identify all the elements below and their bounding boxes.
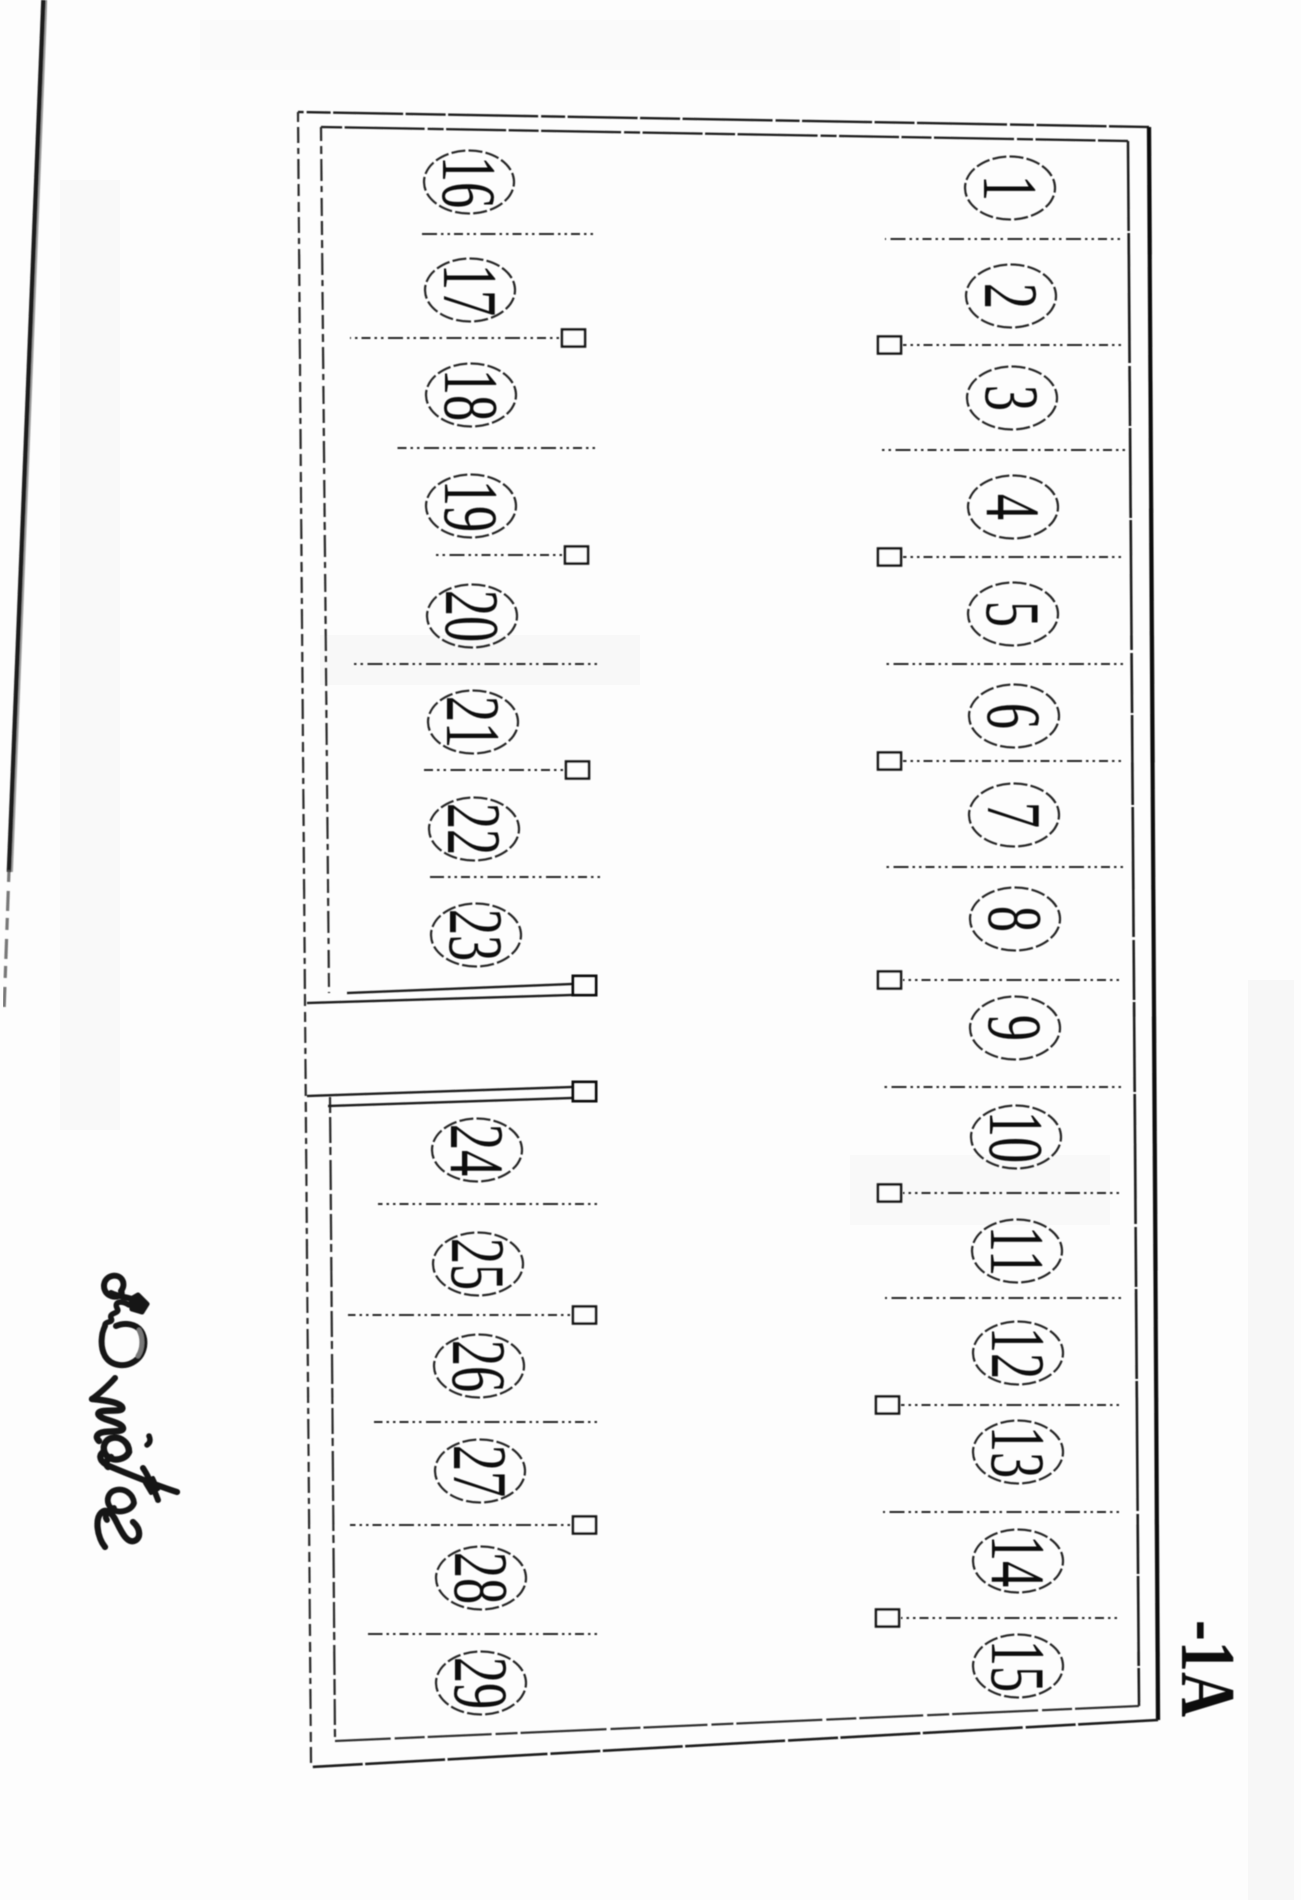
svg-text:8: 8 xyxy=(971,906,1056,932)
svg-text:7: 7 xyxy=(970,802,1055,828)
svg-text:10: 10 xyxy=(972,1111,1057,1163)
svg-text:13: 13 xyxy=(974,1426,1059,1478)
svg-text:20: 20 xyxy=(428,590,513,642)
svg-text:16: 16 xyxy=(425,156,510,208)
svg-text:21: 21 xyxy=(429,696,514,748)
svg-text:18: 18 xyxy=(427,369,512,421)
svg-text:19: 19 xyxy=(427,480,512,532)
svg-text:25: 25 xyxy=(434,1238,519,1290)
svg-text:4: 4 xyxy=(969,494,1054,520)
svg-text:27: 27 xyxy=(436,1445,521,1497)
svg-text:11: 11 xyxy=(973,1226,1058,1276)
svg-text:5: 5 xyxy=(969,601,1054,627)
svg-text:26: 26 xyxy=(435,1340,520,1392)
svg-text:29: 29 xyxy=(437,1657,522,1709)
svg-text:12: 12 xyxy=(974,1327,1059,1379)
svg-text:15: 15 xyxy=(974,1640,1059,1692)
svg-text:2: 2 xyxy=(967,283,1052,309)
svg-text:17: 17 xyxy=(426,264,511,316)
svg-text:-1A: -1A xyxy=(1165,1620,1251,1717)
svg-text:24: 24 xyxy=(433,1124,518,1176)
svg-text:23: 23 xyxy=(432,909,517,961)
svg-text:1: 1 xyxy=(966,175,1051,201)
svg-text:9: 9 xyxy=(971,1015,1056,1041)
svg-text:6: 6 xyxy=(970,703,1055,729)
svg-text:3: 3 xyxy=(968,385,1053,411)
svg-text:28: 28 xyxy=(437,1552,522,1604)
svg-text:22: 22 xyxy=(430,803,515,855)
svg-text:14: 14 xyxy=(974,1535,1059,1587)
